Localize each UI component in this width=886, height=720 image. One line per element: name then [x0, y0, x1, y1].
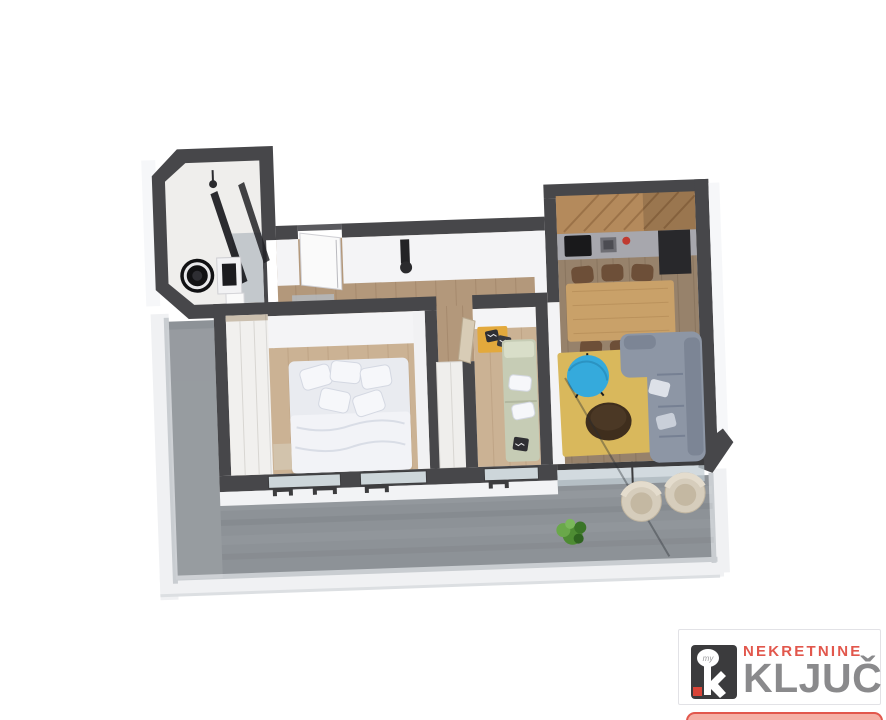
window	[484, 467, 538, 481]
key-red-square	[693, 687, 702, 696]
page: my NEKRETNINE KLJUČ	[0, 0, 886, 720]
armchair	[664, 472, 705, 513]
bedside-mat	[273, 444, 292, 471]
entrance-opening	[298, 224, 342, 232]
key-head-text: my	[703, 654, 715, 663]
window	[360, 471, 426, 485]
daybed	[502, 339, 540, 462]
agency-logo: my NEKRETNINE KLJUČ	[678, 629, 881, 705]
floorplan-render	[0, 0, 886, 720]
window	[268, 474, 340, 489]
key-icon: my	[691, 645, 737, 699]
logo-line2: KLJUČ	[743, 658, 882, 699]
double-bed	[270, 357, 412, 474]
entrance-door	[300, 232, 342, 291]
fridge	[658, 229, 692, 274]
hall-north-wall-face	[342, 231, 546, 284]
bathroom-cabinet	[226, 293, 244, 305]
bathroom	[141, 146, 279, 323]
cooktop	[564, 235, 592, 257]
coat-rack	[400, 239, 410, 263]
logo-banner	[686, 712, 883, 720]
armchair	[621, 481, 662, 522]
logo-text: NEKRETNINE KLJUČ	[743, 644, 882, 699]
dining-table	[566, 280, 676, 342]
